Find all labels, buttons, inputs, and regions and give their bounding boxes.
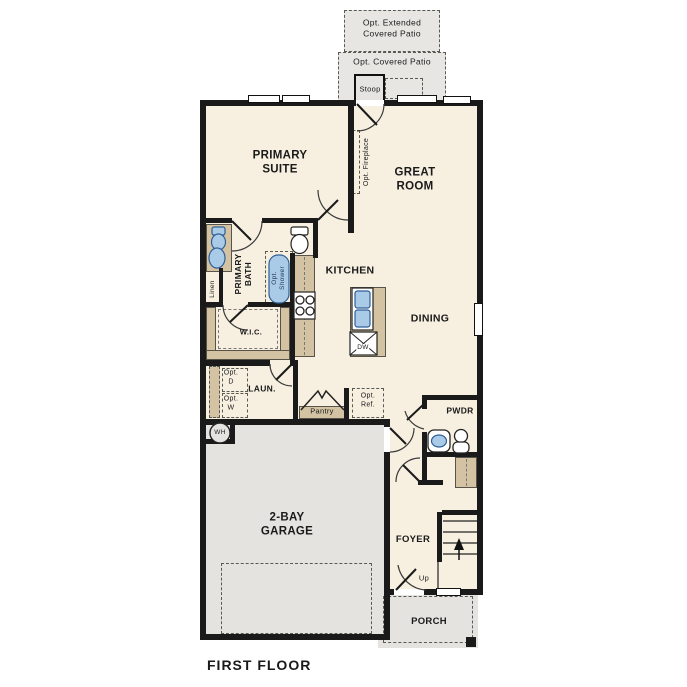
great-room-label: GREAT ROOM [395, 166, 436, 195]
opt-dryer-label: Opt. D [224, 369, 238, 387]
wall-garage-right [384, 419, 390, 640]
wall-wh-nook [203, 439, 231, 444]
pantry-label: Pantry [310, 406, 333, 415]
linen-label: Linen [209, 280, 217, 297]
window [282, 95, 310, 103]
window [443, 96, 471, 104]
wall-right [477, 100, 483, 595]
porch-label: PORCH [411, 616, 447, 628]
window [474, 303, 483, 336]
wall-garage-bottom [200, 634, 390, 640]
laundry-label: LAUN. [248, 384, 275, 395]
opt-fridge-label: Opt. Ref. [361, 392, 375, 410]
wall-segment [248, 302, 292, 307]
wall-stair-left [437, 512, 442, 562]
wall-stair-top [442, 510, 477, 515]
wall-segment [203, 360, 270, 366]
porch-post [466, 637, 476, 647]
first-floor-plan: Opt. Extended Covered Patio Opt. Covered… [0, 0, 687, 687]
opt-fireplace-label: Opt. Fireplace [363, 138, 371, 186]
covered-patio-label: Opt. Covered Patio [353, 57, 431, 68]
wall-segment [313, 218, 318, 258]
window [436, 588, 461, 596]
dishwasher-label: DW [356, 344, 369, 352]
bath-vanity [206, 224, 232, 272]
wall-pantry-left [293, 360, 298, 419]
wall-segment [422, 395, 427, 409]
stairs-up-label: Up [419, 573, 429, 582]
garage-door-outline [221, 563, 372, 634]
foyer-wing-floor [390, 425, 480, 592]
wic-shelf-bottom [206, 350, 290, 360]
wall-linen [219, 268, 223, 302]
kitchen-counter-line [304, 257, 305, 355]
powder-label: PWDR [446, 406, 473, 417]
garage-label: 2-BAY GARAGE [261, 511, 313, 540]
garage-door-opening [384, 427, 390, 452]
stoop-door-opening [356, 100, 384, 106]
extended-patio-label: Opt. Extended Covered Patio [363, 17, 421, 38]
wic-label: W.I.C. [240, 327, 262, 336]
wall-left [200, 100, 206, 640]
primary-bath-label: PRIMARY BATH [233, 254, 253, 295]
stoop-label: Stoop [359, 84, 380, 93]
wall-top [200, 100, 483, 106]
water-heater-label: WH [214, 429, 225, 437]
window [397, 95, 437, 103]
wall-powder-bottom [422, 452, 477, 457]
wall-segment [203, 302, 223, 307]
wall-powder-top [427, 395, 477, 400]
primary-suite-label: PRIMARY SUITE [253, 149, 308, 178]
plan-title: FIRST FLOOR [207, 657, 311, 675]
opt-shower-label: Opt. Shower [271, 266, 287, 290]
dining-label: DINING [411, 312, 450, 325]
wall-suite-greatroom [348, 103, 354, 233]
opt-washer-label: Opt. W [224, 395, 238, 413]
foyer-label: FOYER [396, 534, 430, 546]
laundry-shelf [209, 366, 220, 418]
wall-pantry-right [344, 388, 349, 419]
wall-segment [262, 218, 318, 223]
wall-segment [418, 480, 443, 485]
front-door-opening [394, 589, 424, 595]
entry-closet-line [466, 459, 467, 486]
window [248, 95, 280, 103]
kitchen-label: KITCHEN [326, 264, 375, 277]
wall-segment [203, 218, 232, 223]
wall-garage-top [200, 419, 390, 425]
